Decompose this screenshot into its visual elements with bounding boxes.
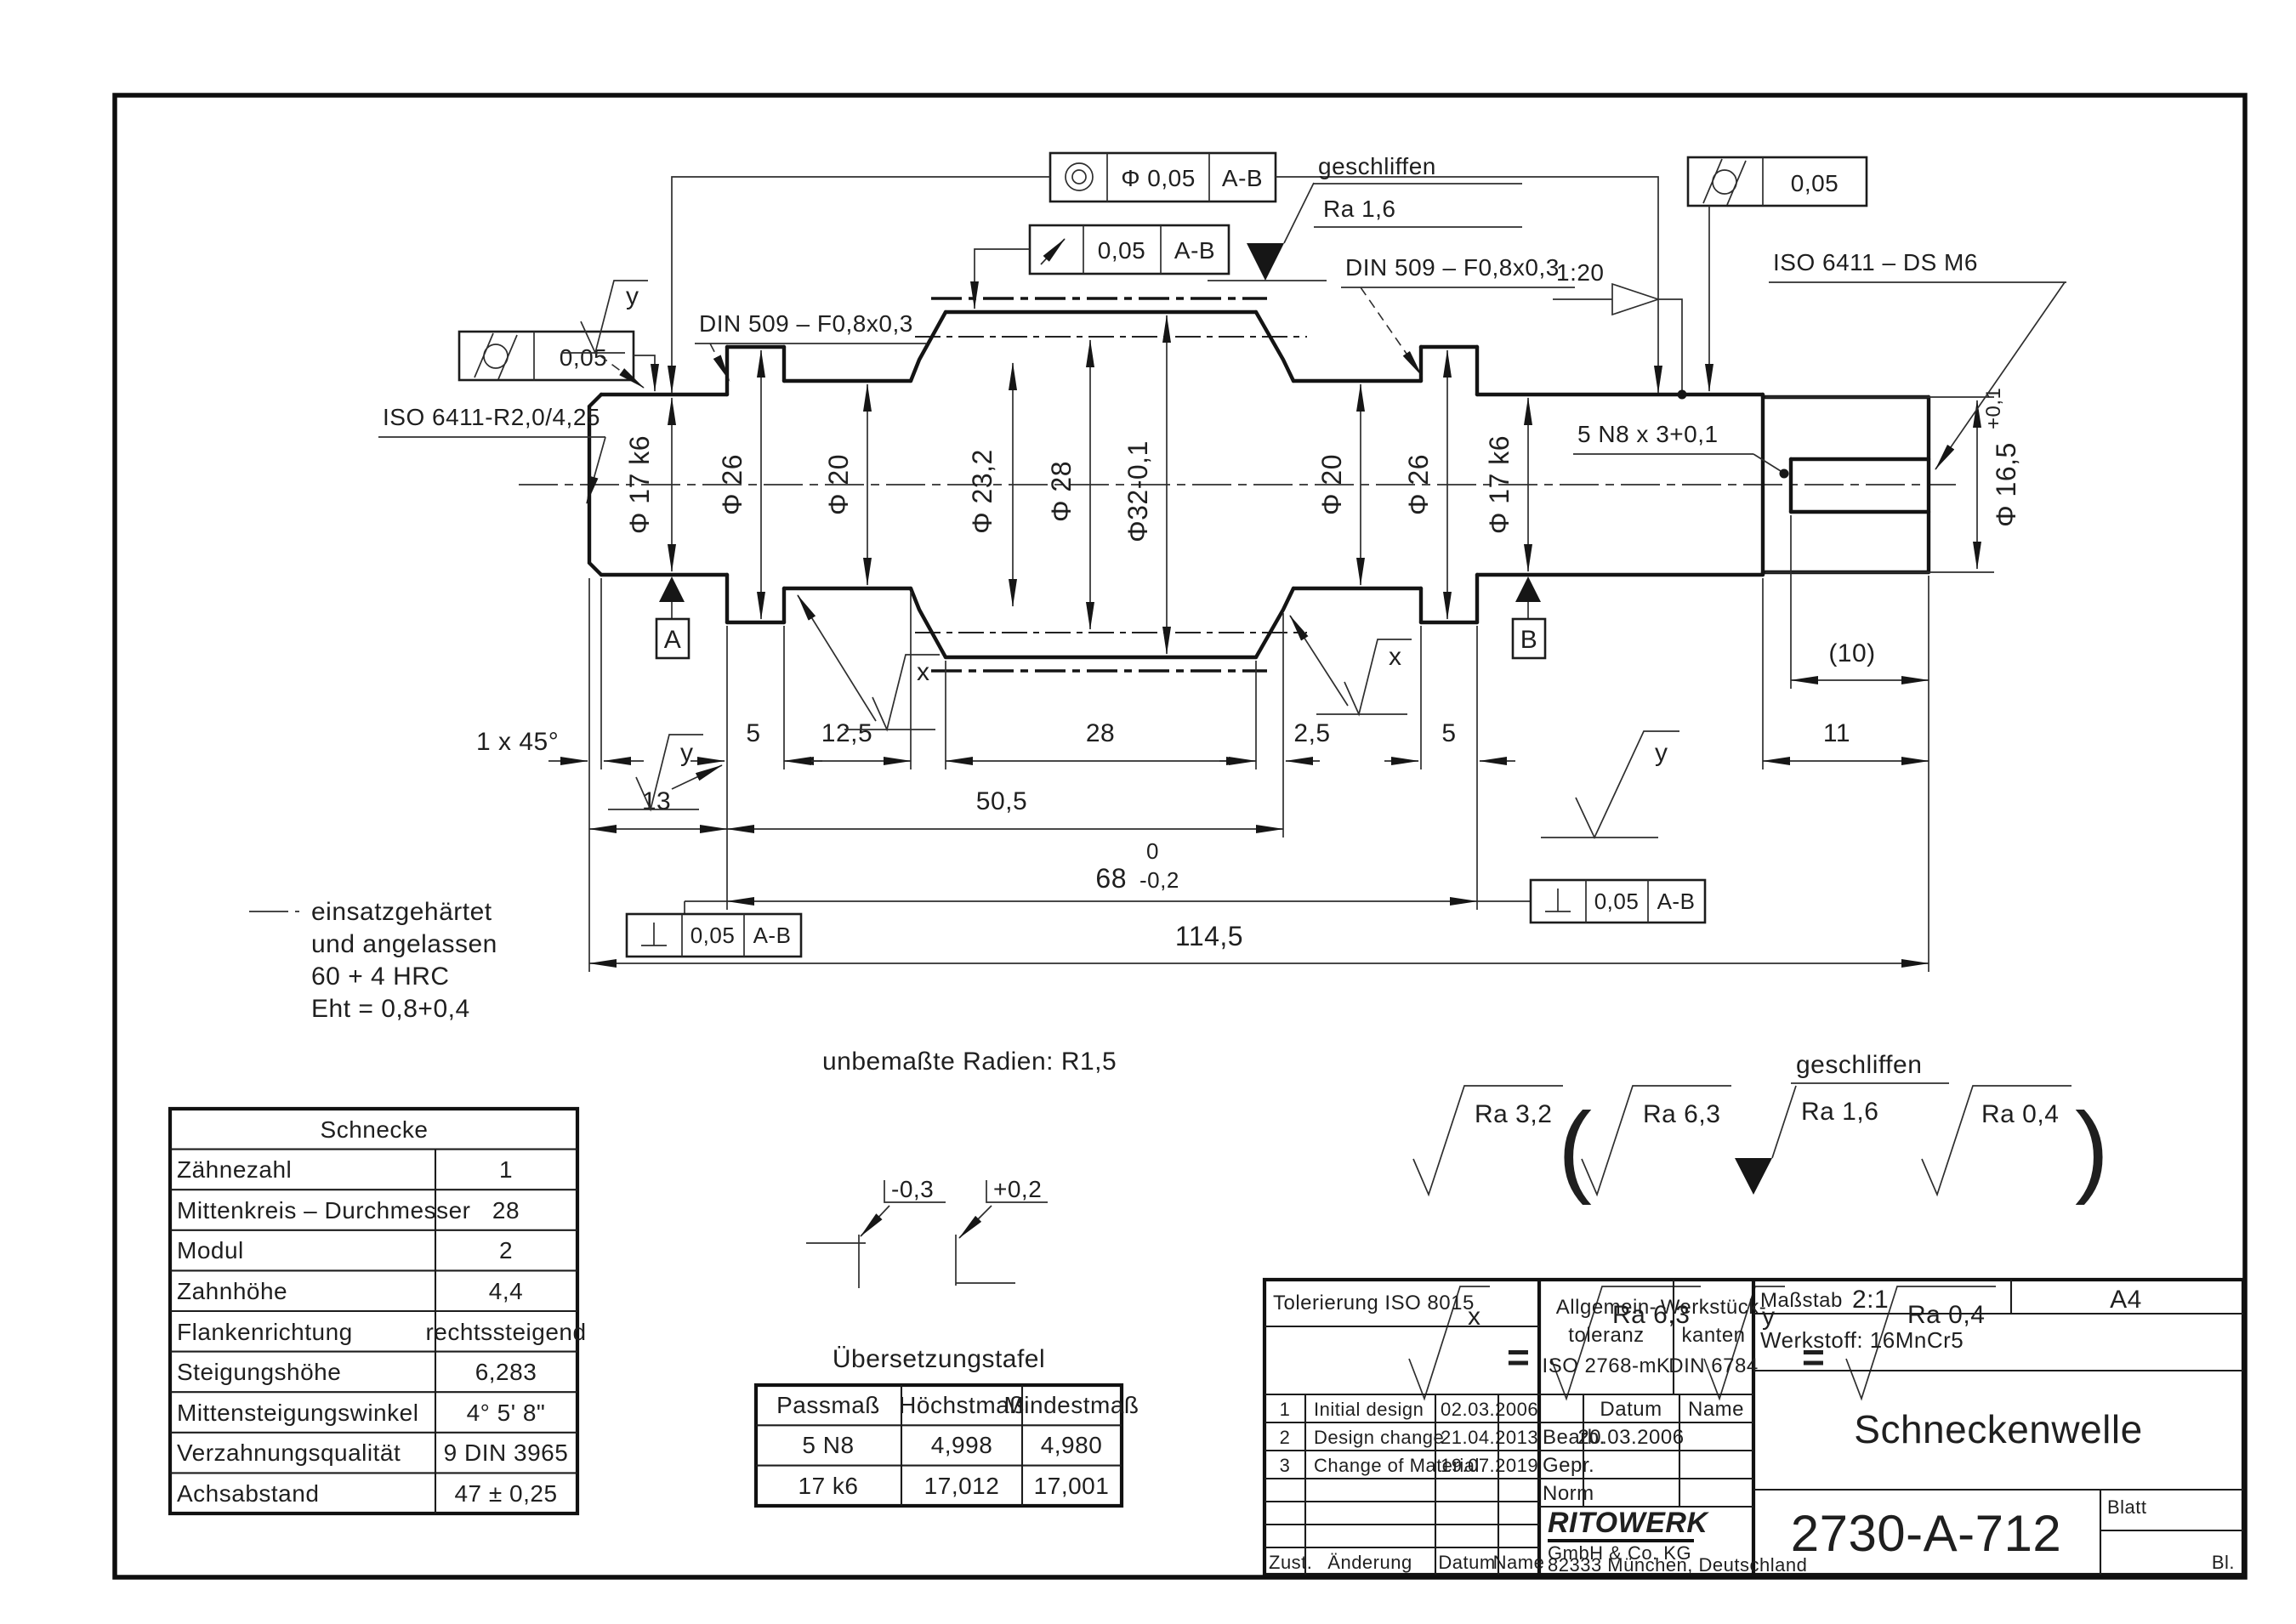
undercut-left-callout: DIN 509 – F0,8x0,3 <box>699 310 913 337</box>
uebersetzung-cell: 4,980 <box>1041 1432 1103 1458</box>
surface-x-label: x <box>1389 643 1402 671</box>
datum-a-label: A <box>664 626 682 654</box>
surface-y-label: y <box>680 739 694 767</box>
schnecke-title: Schnecke <box>321 1116 429 1143</box>
massstab-label: Maßstab <box>1760 1289 1843 1312</box>
schnecke-value: rechtssteigend <box>425 1319 586 1345</box>
note-line: 60 + 4 HRC <box>311 962 450 991</box>
runout-datum: A-B <box>1174 237 1215 264</box>
werkstoff-label: Werkstoff: 16MnCr5 <box>1760 1327 1964 1353</box>
dim-25: 2,5 <box>1293 719 1330 747</box>
rev-nr: 2 <box>1280 1427 1291 1448</box>
engineering-drawing-page: Φ 17 k6 Φ 26 Φ 20 Φ 23,2 Φ 28 Φ32-0,1 Φ … <box>0 0 2296 1624</box>
legend-04-value: Ra 0,4 <box>1981 1100 2059 1128</box>
rev-text: Initial design <box>1314 1399 1424 1420</box>
allgemein-line: ISO 2768-mK <box>1543 1354 1671 1377</box>
allgemein-line: Allgemein- <box>1556 1296 1657 1319</box>
dim-125: 12,5 <box>821 719 872 747</box>
surface-y-label: y <box>1655 739 1668 767</box>
dim-68-lower: -0,2 <box>1139 867 1179 893</box>
ground-label: geschliffen <box>1318 153 1436 179</box>
dim-d28: Φ 28 <box>1046 461 1077 522</box>
perp-left-datum: A-B <box>753 923 792 948</box>
note-line: Eht = 0,8+0,4 <box>311 995 470 1023</box>
schnecke-value: 1 <box>499 1156 513 1183</box>
kanten-line: kanten <box>1681 1324 1745 1347</box>
surface-x-label: x <box>917 658 930 686</box>
col-zust: Zust. <box>1269 1552 1312 1573</box>
dim-d26-left: Φ 26 <box>717 454 747 515</box>
ground-ra: Ra 1,6 <box>1323 196 1396 222</box>
col-name: Name <box>1493 1552 1545 1573</box>
header-name: Name <box>1688 1398 1744 1421</box>
datum-b-label: B <box>1520 626 1538 654</box>
cylindricity-left-value: 0,05 <box>560 344 608 371</box>
equals-sign: = <box>1507 1335 1530 1379</box>
norm-label: Norm <box>1543 1482 1594 1505</box>
uebersetzung-title: Übersetzungstafel <box>833 1345 1045 1373</box>
schnecke-value: 4,4 <box>489 1278 523 1304</box>
bearb-date: 20.03.2006 <box>1577 1426 1684 1449</box>
dim-d32: Φ32-0,1 <box>1122 440 1153 542</box>
perp-right-value: 0,05 <box>1594 889 1640 914</box>
format-label: A4 <box>2110 1286 2142 1314</box>
gepr-label: Gepr. <box>1543 1454 1594 1477</box>
part-title: Schneckenwelle <box>1854 1407 2142 1451</box>
cylindricity-right-value: 0,05 <box>1791 170 1839 196</box>
company-line2: 82333 München, Deutschland <box>1548 1554 1807 1576</box>
legend-ground-label: geschliffen <box>1796 1051 1922 1079</box>
surface-y-label: y <box>626 282 639 310</box>
rev-date: 19.07.2019 <box>1441 1455 1538 1476</box>
uebersetzung-cell: 17 k6 <box>798 1473 859 1499</box>
uebersetzung-header: Mindestmaß <box>1003 1392 1139 1418</box>
drawing-border <box>115 95 2245 1577</box>
dim-d17-left: Φ 17 k6 <box>624 435 655 534</box>
dim-5-left: 5 <box>746 719 760 747</box>
schnecke-label: Zähnezahl <box>177 1156 292 1183</box>
legend-63-value: Ra 6,3 <box>1643 1100 1720 1128</box>
edge-plus-value: +0,2 <box>993 1176 1042 1202</box>
perp-left-value: 0,05 <box>691 923 736 948</box>
schnecke-value: 2 <box>499 1237 513 1263</box>
schnecke-label: Verzahnungsqualität <box>177 1439 401 1466</box>
rev-date: 02.03.2006 <box>1441 1399 1538 1420</box>
dim-d165-tol: +0,1 <box>1982 388 2005 429</box>
keyway-callout: 5 N8 x 3+0,1 <box>1577 421 1719 447</box>
schnecke-label: Mittenkreis – Durchmesser <box>177 1197 470 1224</box>
dim-d20-right: Φ 20 <box>1316 454 1347 515</box>
col-aenderung: Änderung <box>1327 1552 1412 1573</box>
dim-68-upper: 0 <box>1146 838 1159 864</box>
schnecke-label: Achsabstand <box>177 1480 319 1507</box>
uebersetzung-cell: 17,012 <box>924 1473 1000 1499</box>
dim-d165: Φ 16,5 <box>1991 442 2021 527</box>
runout-value: 0,05 <box>1098 237 1146 264</box>
dim-d26-right: Φ 26 <box>1403 454 1434 515</box>
col-datum: Datum <box>1438 1552 1495 1573</box>
radii-note: unbemaßte Radien: R1,5 <box>822 1048 1117 1076</box>
dim-total: 114,5 <box>1175 921 1243 951</box>
header-datum: Datum <box>1600 1398 1662 1421</box>
dim-5-right: 5 <box>1441 719 1456 747</box>
uebersetzung-cell: 17,001 <box>1034 1473 1110 1499</box>
tolerierung-note: Tolerierung ISO 8015 <box>1273 1292 1475 1315</box>
schnecke-value: 6,283 <box>475 1359 537 1385</box>
bl-label: Bl. <box>2212 1552 2235 1573</box>
edge-minus-value: -0,3 <box>891 1176 934 1202</box>
dim-chamfer: 1 x 45° <box>476 728 559 756</box>
center-hole-left-callout: ISO 6411-R2,0/4,25 <box>383 404 600 430</box>
dim-d20-left: Φ 20 <box>823 454 854 515</box>
dim-505: 50,5 <box>976 787 1027 815</box>
note-line: und angelassen <box>311 930 497 958</box>
legend-paren-open: ( <box>1558 1092 1592 1206</box>
kanten-line: DIN 6784 <box>1668 1354 1758 1377</box>
dim-11: 11 <box>1823 719 1850 747</box>
dim-28: 28 <box>1086 719 1115 747</box>
schnecke-label: Zahnhöhe <box>177 1278 287 1304</box>
drawing-canvas: Φ 17 k6 Φ 26 Φ 20 Φ 23,2 Φ 28 Φ32-0,1 Φ … <box>0 0 2296 1624</box>
dim-68: 68 <box>1095 863 1127 894</box>
massstab-value: 2:1 <box>1852 1286 1889 1314</box>
taper-ratio-label: 1:20 <box>1556 259 1605 286</box>
dim-d232: Φ 23,2 <box>967 449 997 534</box>
uebersetzung-cell: 5 N8 <box>802 1432 854 1458</box>
rev-date: 21.04.2013 <box>1441 1427 1538 1448</box>
drawing-number: 2730-A-712 <box>1791 1505 2062 1562</box>
concentricity-value: Φ 0,05 <box>1121 165 1196 191</box>
center-hole-right-callout: ISO 6411 – DS M6 <box>1773 249 1978 275</box>
company-logo: RITOWERK <box>1548 1507 1709 1539</box>
schnecke-label: Mittensteigungswinkel <box>177 1400 418 1426</box>
rev-nr: 3 <box>1280 1455 1291 1476</box>
schnecke-value: 47 ± 0,25 <box>454 1480 557 1507</box>
allgemein-line: toleranz <box>1568 1324 1644 1347</box>
schnecke-value: 9 DIN 3965 <box>444 1439 569 1466</box>
schnecke-label: Flankenrichtung <box>177 1319 353 1345</box>
dim-10-aux: (10) <box>1828 639 1875 667</box>
schnecke-label: Modul <box>177 1237 244 1263</box>
blatt-label: Blatt <box>2107 1496 2147 1518</box>
uebersetzung-cell: 4,998 <box>931 1432 993 1458</box>
rev-text: Design change <box>1314 1427 1444 1448</box>
legend-general-value: Ra 3,2 <box>1475 1100 1552 1128</box>
legend-paren-close: ) <box>2075 1092 2109 1206</box>
rev-nr: 1 <box>1280 1399 1291 1420</box>
note-line: einsatzgehärtet <box>311 898 492 926</box>
schnecke-label: Steigungshöhe <box>177 1359 341 1385</box>
concentricity-datum: A-B <box>1222 165 1263 191</box>
legend-16-value: Ra 1,6 <box>1801 1098 1878 1126</box>
schnecke-value: 28 <box>492 1197 520 1224</box>
uebersetzung-header: Passmaß <box>776 1392 880 1418</box>
schnecke-value: 4° 5' 8" <box>467 1400 546 1426</box>
kanten-line: Werkstück- <box>1661 1296 1767 1319</box>
undercut-right-callout: DIN 509 – F0,8x0,3 <box>1345 254 1560 281</box>
perp-right-datum: A-B <box>1657 889 1696 914</box>
legend-y-value: Ra 0,4 <box>1907 1301 1985 1329</box>
dim-d17-right: Φ 17 k6 <box>1484 435 1515 534</box>
